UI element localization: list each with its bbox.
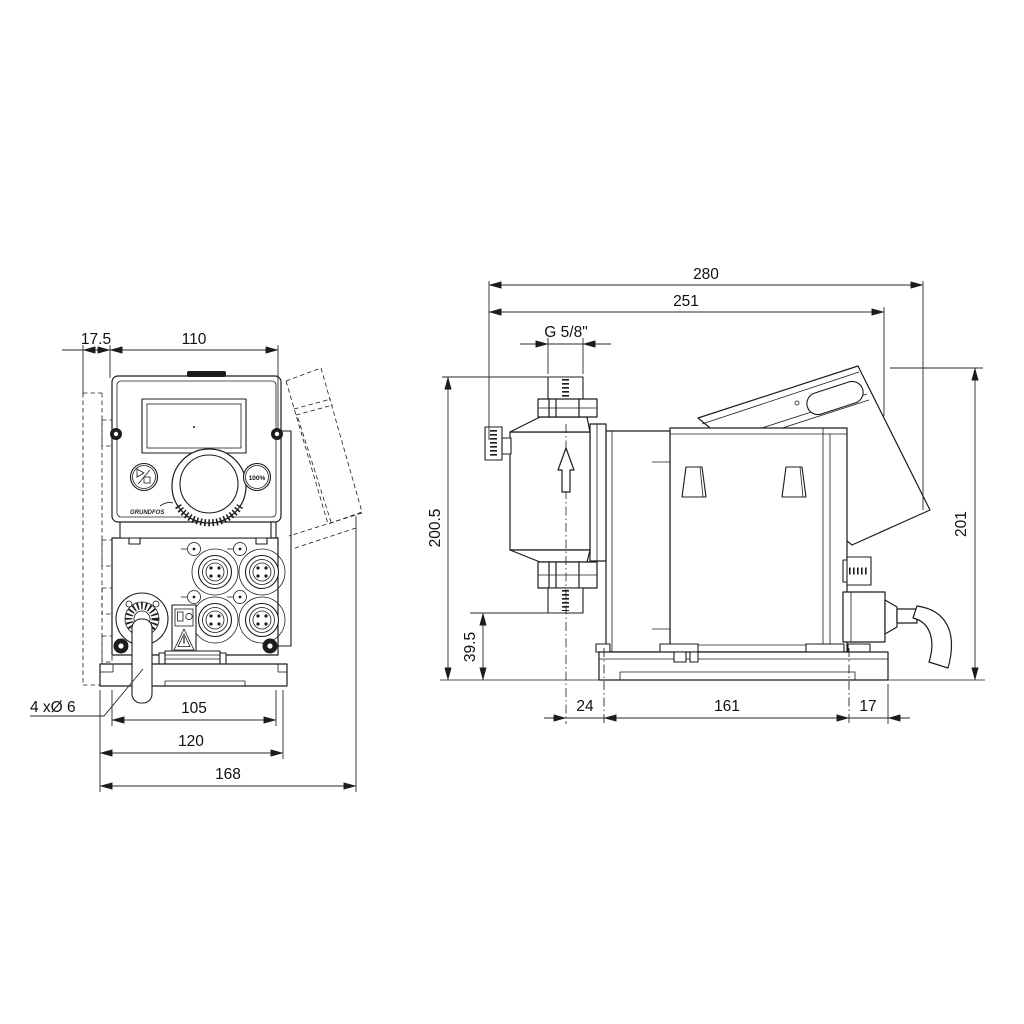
panel-top-tab <box>187 371 226 377</box>
mounting-plate-front <box>100 664 287 686</box>
svg-text:GRUNDFOS: GRUNDFOS <box>130 510 164 516</box>
power-cable-side <box>913 606 951 668</box>
svg-text:39.5: 39.5 <box>462 632 479 662</box>
pump-housing-side <box>670 428 847 652</box>
display <box>142 399 246 453</box>
dosing-head <box>485 377 606 724</box>
svg-text:201: 201 <box>953 511 970 537</box>
svg-text:168: 168 <box>215 766 241 783</box>
svg-text:24: 24 <box>576 698 594 715</box>
svg-text:280: 280 <box>693 266 719 283</box>
body-screw <box>263 639 278 654</box>
svg-text:161: 161 <box>714 698 740 715</box>
m12-connector[interactable] <box>192 549 238 595</box>
side-view <box>440 366 985 724</box>
svg-text:17.5: 17.5 <box>81 331 111 348</box>
svg-text:200.5: 200.5 <box>427 509 444 548</box>
warning-label <box>172 605 196 656</box>
dimension-thread: G 5/8" <box>520 324 611 374</box>
dimension-wall-offset: 17.5 <box>62 331 111 396</box>
capacity-100-label: 100% <box>249 475 266 482</box>
panel-screw-right <box>271 428 283 440</box>
cable-gland-side <box>843 592 885 642</box>
technical-drawing: 100% GRUNDFOS <box>0 0 1024 1024</box>
suction-valve <box>538 562 597 613</box>
dimension-valve-height: 39.5 <box>462 613 552 680</box>
discharge-valve <box>538 377 597 417</box>
svg-text:105: 105 <box>181 700 207 717</box>
panel-screw-left <box>110 428 122 440</box>
svg-text:110: 110 <box>182 331 207 348</box>
start-stop-button[interactable] <box>131 464 158 491</box>
click-wheel[interactable] <box>172 449 246 523</box>
control-cube-hidden-front <box>286 368 362 549</box>
svg-text:G 5/8": G 5/8" <box>544 324 587 341</box>
dimension-head-offset: 24 <box>544 648 604 724</box>
m12-connector[interactable] <box>239 549 285 595</box>
dimension-rear-offset: 17 <box>849 684 910 724</box>
svg-text:17: 17 <box>859 698 876 715</box>
body-screw <box>114 639 129 654</box>
m12-connector[interactable] <box>239 597 285 643</box>
control-panel: 100% GRUNDFOS <box>110 371 283 523</box>
panel-skirt <box>120 522 271 538</box>
svg-text:4 xØ 6: 4 xØ 6 <box>30 699 76 716</box>
front-view: 100% GRUNDFOS <box>83 368 362 703</box>
adapter-flange <box>606 431 670 652</box>
capacity-100-button[interactable]: 100% <box>244 464 271 491</box>
m12-connector[interactable] <box>192 597 238 643</box>
power-cable-front <box>132 619 152 703</box>
svg-text:251: 251 <box>673 293 699 310</box>
svg-text:120: 120 <box>178 733 204 750</box>
